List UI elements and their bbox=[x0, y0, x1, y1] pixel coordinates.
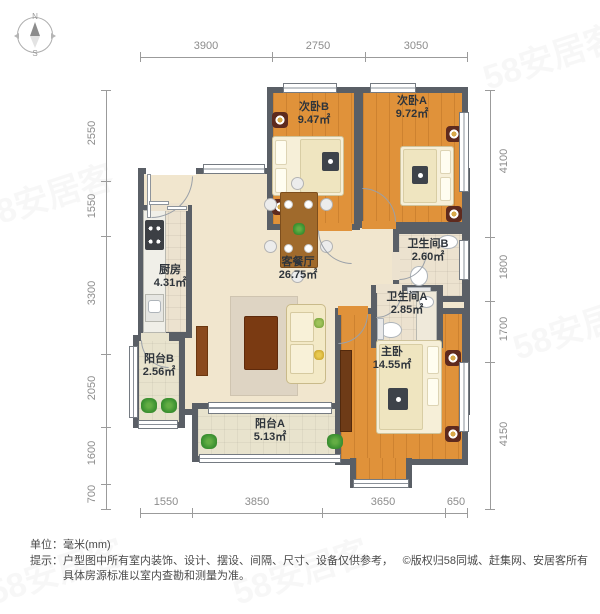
dining-plate bbox=[304, 200, 313, 209]
sofa-cushion bbox=[290, 312, 314, 342]
bedroom-a-pillow bbox=[440, 177, 451, 201]
dining-plate bbox=[304, 244, 313, 253]
master-right-window bbox=[459, 362, 469, 432]
dining-centerpiece-plant bbox=[293, 223, 305, 235]
bedroom-b-pillow bbox=[275, 140, 287, 165]
bedroom-b-nightstand bbox=[322, 152, 339, 171]
room-area: 9.72㎡ bbox=[396, 108, 428, 120]
label-bedroom-b: 次卧B 9.47㎡ bbox=[281, 101, 347, 127]
dining-plate bbox=[284, 244, 293, 253]
label-kitchen: 厨房 4.31㎡ bbox=[137, 264, 203, 290]
floor-plan: 次卧B 9.47㎡ 次卧A 9.72㎡ 卫生间B 2.60㎡ 卫生间A 2.85… bbox=[0, 0, 600, 600]
label-bedroom-a: 次卧A 9.72㎡ bbox=[379, 95, 445, 121]
room-name: 次卧A bbox=[397, 95, 427, 107]
sofa-cushion bbox=[290, 344, 314, 374]
room-name: 阳台A bbox=[255, 418, 285, 430]
room-area: 2.60㎡ bbox=[412, 251, 444, 263]
balcony-a-window bbox=[199, 454, 341, 463]
room-name: 主卧 bbox=[381, 346, 403, 358]
tv-cabinet bbox=[196, 326, 208, 376]
bedroom-a-door-opening bbox=[362, 221, 396, 229]
room-name: 客餐厅 bbox=[282, 256, 315, 268]
room-area: 2.56㎡ bbox=[143, 366, 175, 378]
kitchen-sink bbox=[148, 300, 161, 313]
label-balcony-b: 阳台B 2.56㎡ bbox=[126, 353, 192, 379]
bedroom-a-top-window bbox=[370, 83, 416, 93]
room-name: 卫生间A bbox=[387, 291, 428, 303]
dining-chair bbox=[264, 240, 277, 253]
kitchen-slider-panel-1 bbox=[149, 201, 169, 205]
balcony-a-plant bbox=[201, 434, 217, 449]
floor-plan-page: 58安居客 58安居客 58安居客 58安居客 58安居客 58安居客 N S … bbox=[0, 0, 600, 600]
bedroom-a-stool bbox=[446, 206, 462, 222]
unit-note: 单位：毫米(mm) bbox=[30, 536, 111, 552]
tip-line-1: 提示：户型图中所有室内装饰、设计、摆设、间隔、尺寸、设备仅供参考， bbox=[30, 552, 393, 568]
master-wardrobe bbox=[340, 350, 352, 432]
label-bath-a: 卫生间A 2.85㎡ bbox=[374, 291, 440, 317]
balcony-b-plant bbox=[141, 398, 157, 413]
bay-window-glass bbox=[353, 479, 409, 488]
kitchen-slider-panel-2 bbox=[167, 206, 187, 210]
bedroom-b-pillow bbox=[275, 168, 287, 193]
tip-line-2: 具体房源标准以室内查勘和测量为准。 bbox=[63, 567, 250, 583]
label-bath-b: 卫生间B 2.60㎡ bbox=[395, 238, 461, 264]
bedroom-a-nightstand bbox=[412, 166, 428, 184]
entry-door-leaf bbox=[147, 174, 151, 218]
bedroom-b-window bbox=[283, 83, 337, 93]
room-name: 次卧B bbox=[299, 101, 329, 113]
room-area: 14.55㎡ bbox=[373, 359, 412, 371]
dining-chair bbox=[291, 177, 304, 190]
kitchen-stove bbox=[145, 220, 164, 250]
copyright-note: ©版权归58同城、赶集网、安居客所有 bbox=[403, 552, 588, 568]
living-top-window bbox=[203, 164, 265, 174]
label-living-dining: 客餐厅 26.75㎡ bbox=[258, 256, 338, 282]
room-area: 4.31㎡ bbox=[154, 277, 186, 289]
room-area: 26.75㎡ bbox=[279, 269, 318, 281]
room-name: 阳台B bbox=[144, 353, 174, 365]
master-pillow bbox=[427, 378, 439, 406]
living-balcony-a-slider bbox=[208, 402, 332, 414]
room-name: 厨房 bbox=[159, 264, 181, 276]
dining-plate bbox=[284, 200, 293, 209]
room-area: 9.47㎡ bbox=[298, 114, 330, 126]
bath-a-toilet-tank bbox=[377, 318, 384, 340]
balcony-a-plant bbox=[327, 434, 343, 449]
balcony-b-plant bbox=[161, 398, 177, 413]
bedroom-a-pillow bbox=[440, 150, 451, 174]
dining-chair bbox=[264, 198, 277, 211]
sofa-pillow-green bbox=[314, 318, 324, 328]
room-area: 2.85㎡ bbox=[391, 304, 423, 316]
dining-chair bbox=[320, 198, 333, 211]
balcony-b-bottom-window bbox=[138, 420, 178, 429]
entry-opening bbox=[146, 165, 196, 175]
label-balcony-a: 阳台A 5.13㎡ bbox=[232, 418, 308, 444]
master-nightstand bbox=[388, 388, 408, 410]
label-master-bedroom: 主卧 14.55㎡ bbox=[352, 346, 432, 372]
bedroom-a-right-window bbox=[459, 112, 469, 192]
coffee-table bbox=[244, 316, 278, 370]
room-area: 5.13㎡ bbox=[254, 431, 286, 443]
sofa-pillow-yellow bbox=[314, 350, 324, 360]
room-name: 卫生间B bbox=[408, 238, 449, 250]
